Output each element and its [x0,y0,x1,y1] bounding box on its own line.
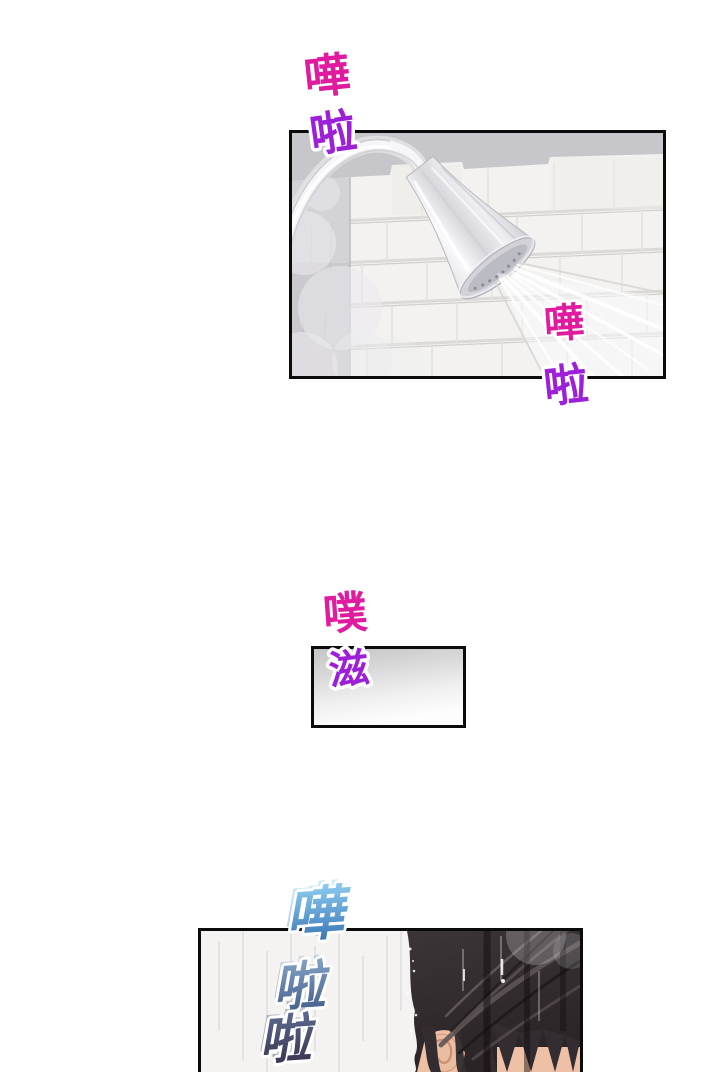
wet-hair-illustration [201,931,580,1072]
shingle-board-shade [550,157,663,209]
panel-hair [198,928,583,1072]
sfx-splash-top-1: 嘩 [272,21,382,131]
shower-head-illustration [292,133,663,376]
svg-text:噗: 噗 [321,587,369,641]
svg-text:嘩: 嘩 [301,47,352,106]
panel-shower [289,130,666,379]
comic-page: 嘩 啦 嘩 啦 噗 滋 嘩 [0,0,720,1072]
panel-squish [311,646,466,728]
